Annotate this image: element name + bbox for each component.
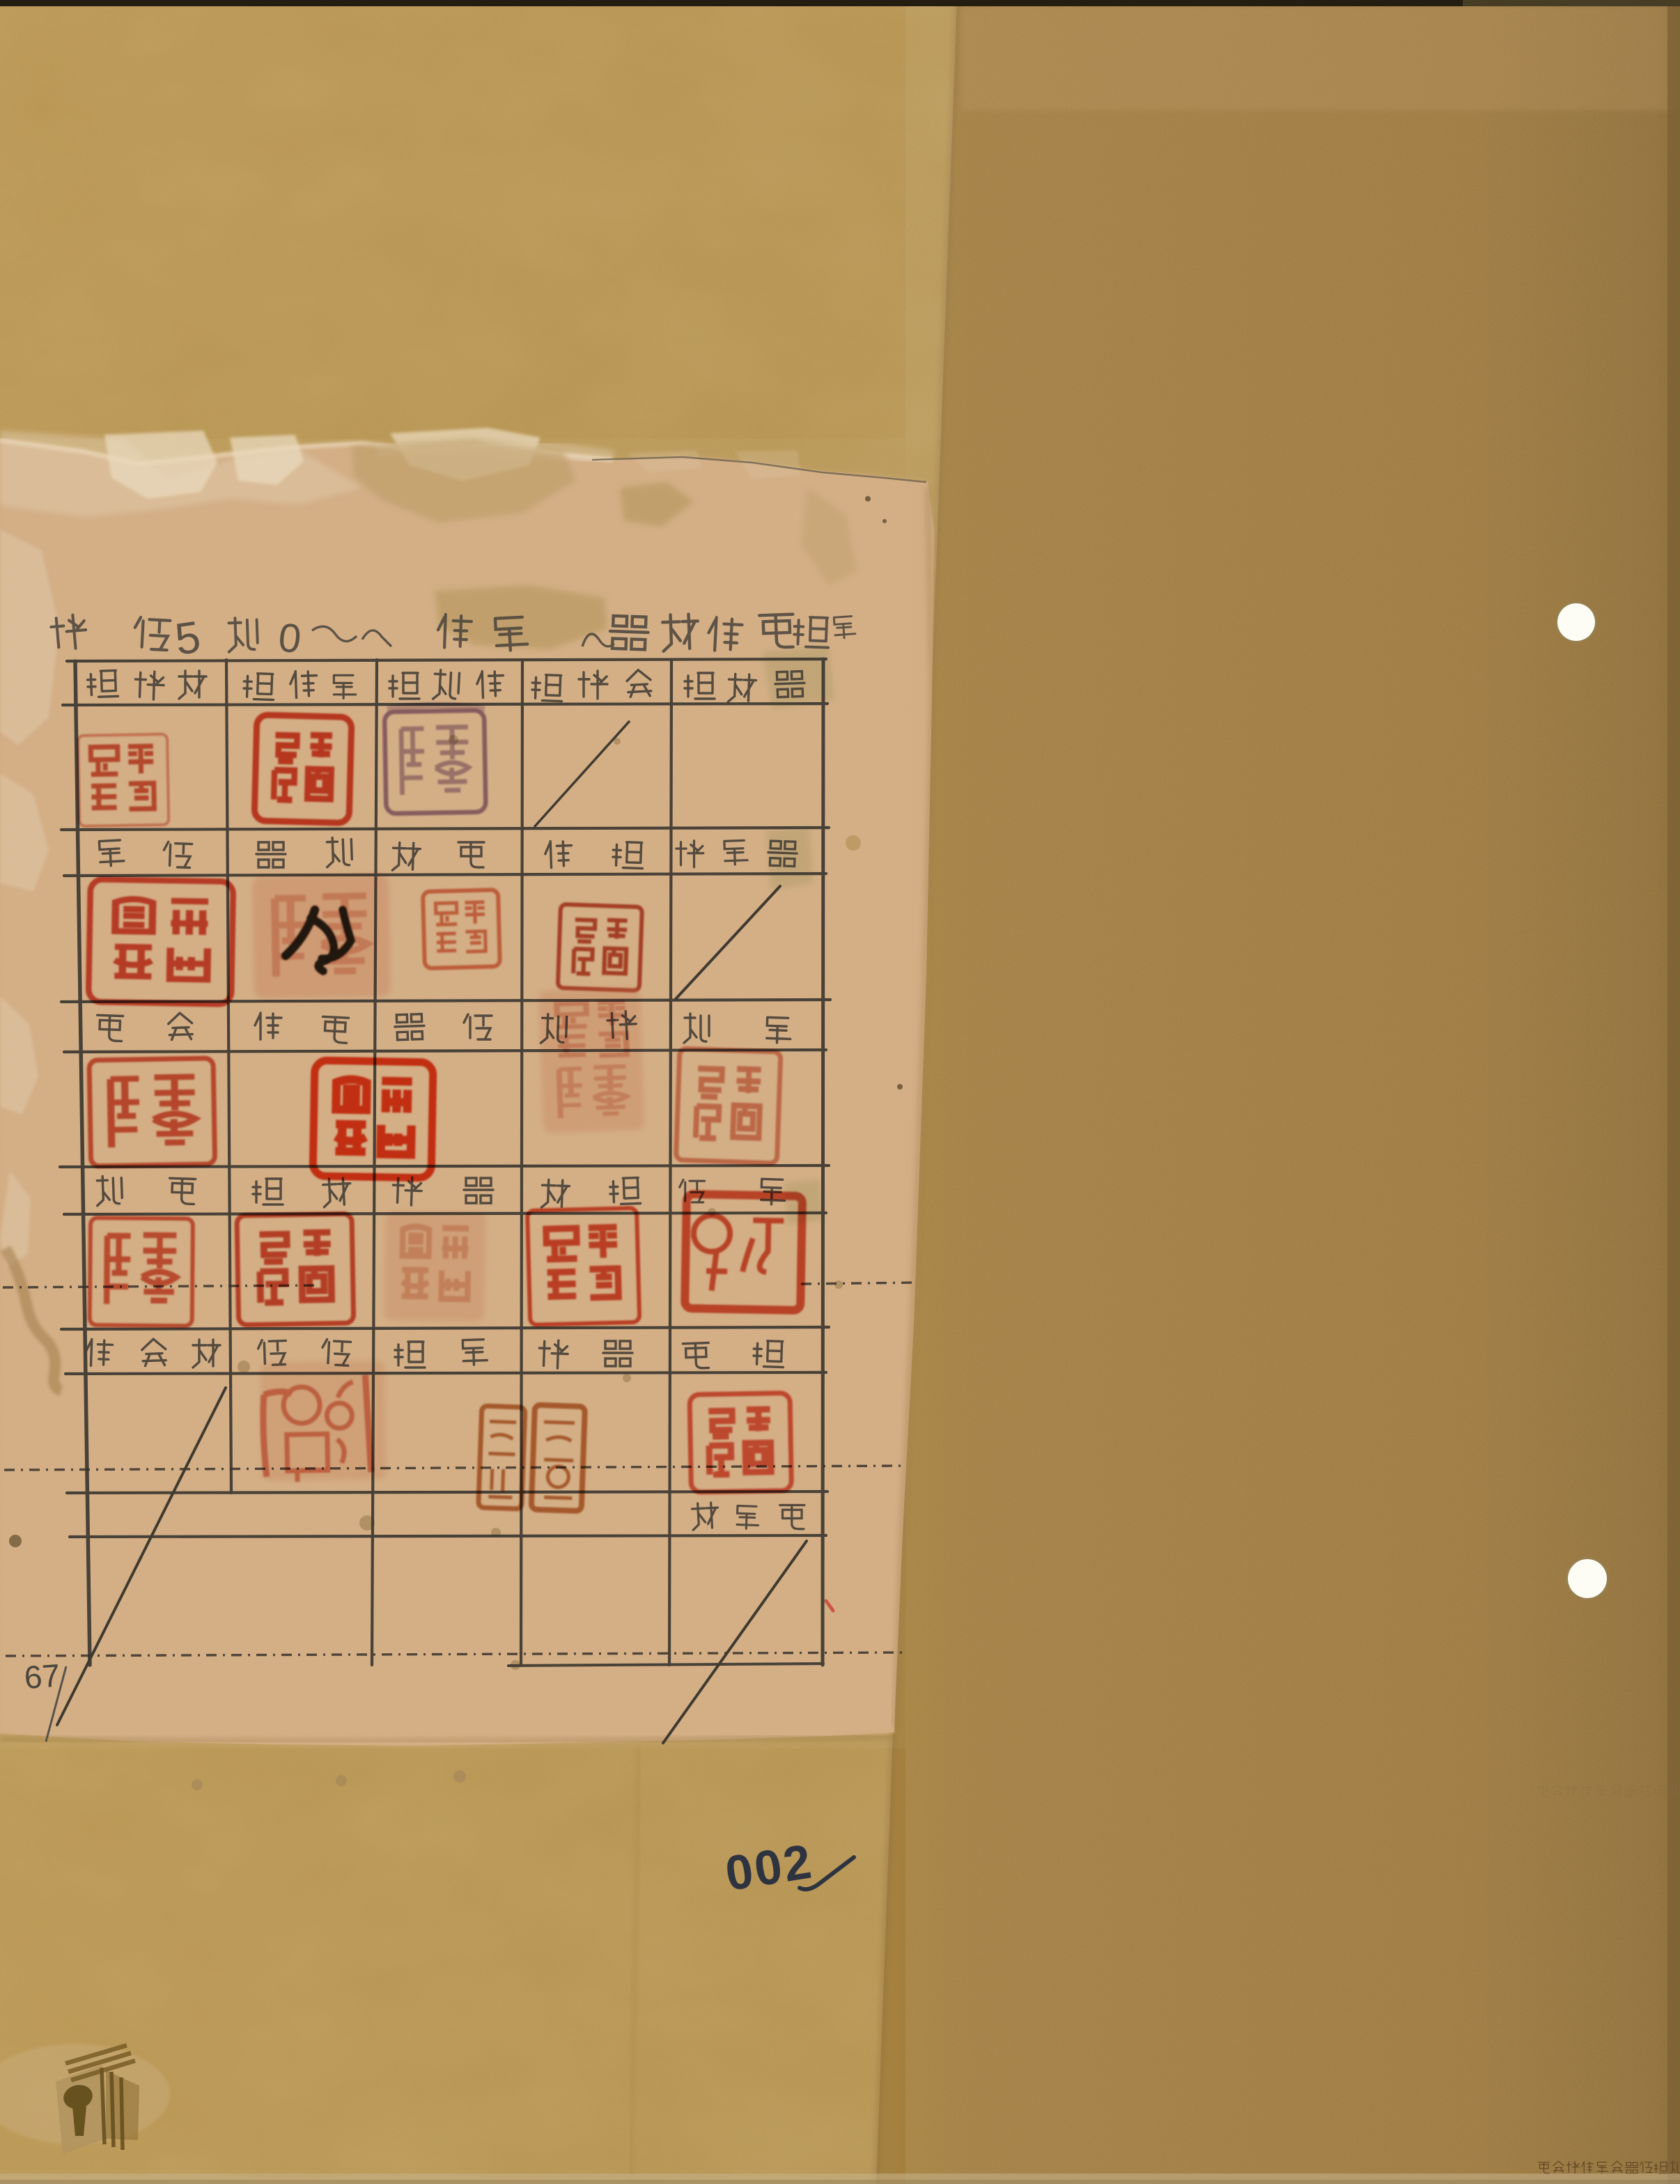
svg-text:0: 0 [277,614,304,662]
svg-text:67: 67 [23,1657,61,1696]
